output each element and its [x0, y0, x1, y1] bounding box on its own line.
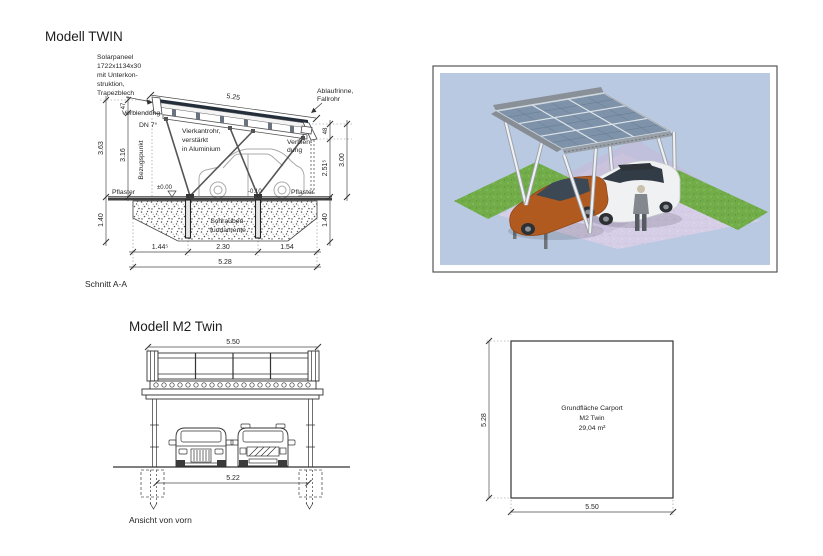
dim-height-clear: 3.16 [120, 148, 127, 162]
dim-bay-left: 1.44⁵ [152, 244, 169, 251]
fv-posts [150, 399, 315, 467]
front-view-title: Modell M2 Twin [129, 319, 223, 334]
dim-plan-depth: 5.28 [481, 413, 488, 427]
fv-trapezblech [150, 381, 316, 389]
pavement-band [108, 198, 332, 201]
dim-panel-offset: 47 [121, 102, 127, 109]
dim-height-eave: 2.51⁵ [322, 160, 329, 177]
fundamente-line: Schrauben- [210, 218, 245, 225]
label-line: Trapezblech [97, 90, 134, 97]
level-zero-label: ±0.00 [157, 185, 173, 191]
dim-bay-right: 1.54 [280, 244, 294, 251]
dim-bay-mid: 2.30 [216, 244, 230, 251]
ablaufrinne-line: Ablaufrinne, [317, 88, 353, 95]
dim-width-total: 5.28 [218, 259, 232, 266]
fv-beam-lower [146, 395, 319, 399]
front-view: Modell M2 Twin 5.50 [113, 319, 350, 525]
dim-depth-right: 1.40 [322, 213, 329, 227]
solarpanel-label: Solarpaneel 1722x1134x30 mit Unterkon- s… [97, 54, 153, 105]
floor-plan: Grundfläche Carport M2 Twin 29,04 m² 5.2… [481, 338, 676, 515]
vierkantrohr-line: verstärkt [182, 137, 208, 144]
bezugspunkt-label: Bezugspunkt [138, 140, 145, 179]
fv-beam-upper [142, 389, 323, 395]
plan-label-line: 29,04 m² [579, 425, 607, 432]
dim-plan-width: 5.50 [585, 504, 599, 511]
sheet-canvas: Modell TWIN Solarpaneel 1722x1134x30 mit… [0, 0, 823, 556]
dim-roof-width: 5.50 [226, 339, 240, 346]
slope-label: DN 7° [139, 121, 157, 129]
render-3d [433, 66, 777, 272]
label-line: Solarpaneel [97, 54, 134, 61]
section-title: Modell TWIN [45, 29, 123, 44]
verblendung-right-line: Verblen- [287, 139, 312, 146]
vierkantrohr-line: in Aluminium [182, 146, 221, 153]
label-line: struktion, [97, 81, 125, 88]
dim-roof-length: 5.25 [226, 93, 241, 102]
dim-depth-left: 1.40 [98, 213, 105, 227]
dim-height-right: 3.00 [339, 153, 346, 167]
screw-foundation-left [186, 200, 191, 238]
dim-gutter-offset: 48 [323, 127, 329, 134]
front-view-caption: Ansicht von vorn [129, 515, 192, 525]
dim-clear-width: 5.22 [226, 475, 240, 482]
dim-height-total: 3.63 [98, 141, 105, 155]
ablaufrinne-line: Fallrohr [317, 96, 341, 103]
drawing-sheet: Modell TWIN Solarpaneel 1722x1134x30 mit… [0, 0, 823, 556]
plan-label-line: M2 Twin [579, 415, 604, 422]
fundamente-line: fundamente [210, 227, 246, 234]
screw-foundation-right [256, 200, 261, 238]
section-caption: Schnitt A-A [85, 279, 127, 289]
fv-roof [142, 351, 323, 399]
level-minus-label: -0.10 [248, 189, 262, 195]
downpipe [311, 140, 314, 196]
verblendung-right-line: dung [287, 147, 302, 154]
vierkantrohr-line: Vierkantrohr, [182, 128, 221, 135]
section-view: Modell TWIN Solarpaneel 1722x1134x30 mit… [45, 29, 353, 289]
fv-car-left [169, 428, 233, 466]
label-line: mit Unterkon- [97, 72, 138, 79]
label-line: 1722x1134x30 [97, 63, 141, 70]
fv-car-right [231, 424, 295, 466]
pflaster-right-label: Pflaster [291, 189, 315, 196]
pflaster-left-label: Pflaster [112, 189, 136, 196]
plan-label-line: Grundfläche Carport [561, 405, 623, 412]
gutter-box [301, 126, 312, 134]
